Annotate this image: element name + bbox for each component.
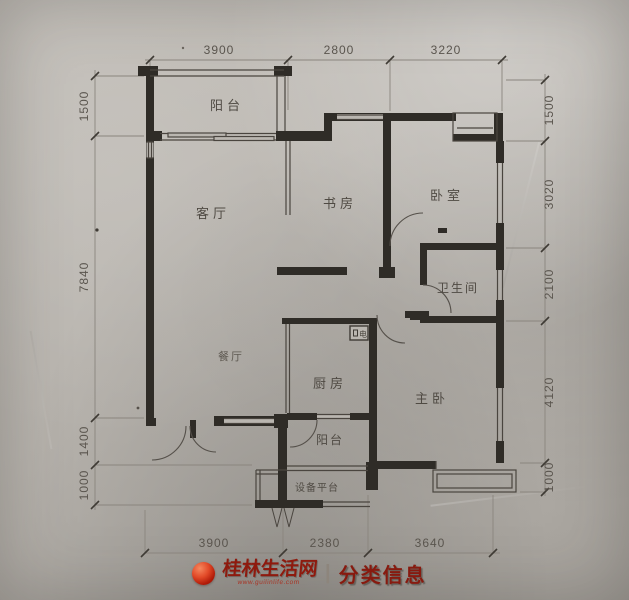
- room-label-balcony-bottom: 阳台: [316, 432, 344, 447]
- watermark: 桂林生活网 www.guilinlife.com | 分类信息: [192, 556, 427, 590]
- dim-bottom-2: 3640: [415, 536, 446, 550]
- room-label-bedroom: 卧室: [430, 188, 464, 203]
- dim-left-2: 1400: [77, 426, 91, 457]
- doors: [152, 213, 451, 460]
- watermark-site-url: www.guilinlife.com: [237, 580, 300, 587]
- dim-top-0: 3900: [204, 43, 235, 57]
- guilinlife-logo-icon: [192, 562, 215, 585]
- watermark-section: 分类信息: [339, 559, 427, 588]
- entry-door-arc: [152, 426, 186, 460]
- dim-left-0: 1500: [77, 91, 91, 122]
- dim-right-1: 3020: [542, 179, 556, 210]
- room-label-balcony-top: 阳台: [210, 98, 244, 113]
- room-label-equipment: 设备平台: [295, 481, 339, 494]
- bedroom-door-arc: [390, 213, 423, 246]
- dim-top-1: 2800: [324, 43, 355, 57]
- dim-right-2: 2100: [542, 269, 556, 300]
- dim-right-4: 1000: [542, 462, 556, 493]
- paper-speck: [182, 47, 184, 49]
- kitchen-balcony-door-arc: [290, 420, 317, 447]
- paper-speck: [137, 407, 140, 410]
- dim-left-1: 7840: [77, 262, 91, 293]
- room-label-master: 主卧: [415, 391, 449, 406]
- room-label-bathroom: 卫生间: [437, 281, 479, 295]
- electric-box-label: 电: [359, 329, 367, 339]
- room-label-study: 书房: [323, 196, 357, 211]
- dim-bottom-1: 2380: [310, 536, 341, 550]
- dim-left-3: 1000: [77, 470, 91, 501]
- watermark-site-name: 桂林生活网: [221, 560, 318, 579]
- electric-box: 电: [350, 326, 368, 340]
- room-label-dining: 餐厅: [218, 349, 244, 363]
- master-door-arc: [377, 315, 405, 343]
- watermark-divider: |: [325, 562, 331, 585]
- paper-speck: [95, 228, 98, 231]
- dim-top-2: 3220: [431, 43, 462, 57]
- dim-bottom-0: 3900: [199, 536, 230, 550]
- room-label-living: 客厅: [196, 206, 230, 221]
- dim-right-0: 1500: [542, 95, 556, 126]
- dim-right-3: 4120: [542, 377, 556, 408]
- room-label-kitchen: 厨房: [313, 376, 347, 391]
- watermark-site-block: 桂林生活网 www.guilinlife.com: [221, 560, 319, 587]
- floorplan-drawing: 3900 2800 3220 3900 2380 3640 1500 7840 …: [0, 0, 629, 600]
- floorplan-photo: 3900 2800 3220 3900 2380 3640 1500 7840 …: [0, 0, 629, 600]
